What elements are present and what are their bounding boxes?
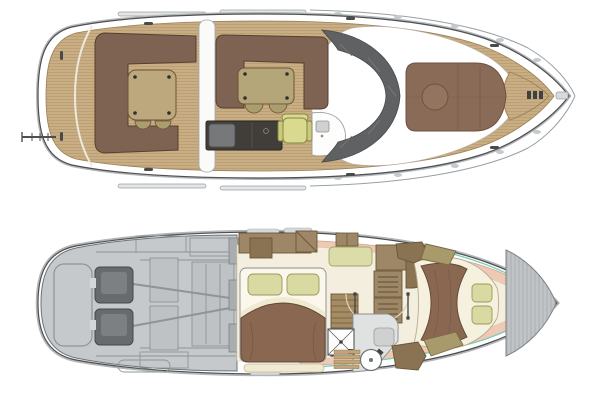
engine-room-bulkhead [229, 238, 238, 352]
helm-seat [278, 114, 312, 143]
wet-bar [206, 121, 282, 150]
lower-deck-plan [0, 200, 600, 400]
sunpad-table [422, 84, 448, 110]
engine-room [41, 235, 237, 372]
cockpit-table [128, 70, 176, 129]
starboard-engine [90, 309, 133, 345]
canvas [0, 0, 600, 400]
hanging-locker [336, 233, 358, 246]
fuel-tank [192, 262, 234, 346]
foredeck-sunpad [406, 63, 506, 131]
main-deck-plan [0, 0, 600, 200]
anchor-windlass [527, 91, 543, 99]
mid-cabin-bench [244, 364, 324, 372]
port-engine [90, 267, 133, 303]
mid-cabin-bed [240, 268, 326, 372]
bow-roller [556, 92, 568, 99]
port-settee [329, 247, 372, 266]
refrigerator [209, 124, 235, 147]
vanity [374, 328, 394, 346]
bow-locker [506, 250, 556, 356]
